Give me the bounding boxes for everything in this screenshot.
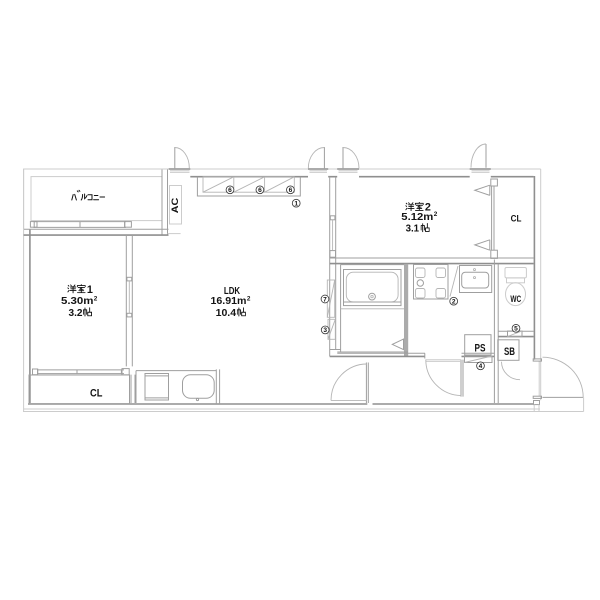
svg-text:3.2: 3.2 <box>69 308 83 319</box>
svg-text:5: 5 <box>514 326 518 333</box>
svg-text:16.91m: 16.91m <box>211 296 247 307</box>
svg-text:2: 2 <box>434 211 438 218</box>
svg-text:CL: CL <box>511 213 522 224</box>
svg-text:2: 2 <box>94 295 98 302</box>
svg-text:5.12m: 5.12m <box>401 212 433 223</box>
svg-text:1: 1 <box>87 284 93 296</box>
svg-text:6: 6 <box>228 187 232 194</box>
svg-text:AC: AC <box>169 197 180 213</box>
svg-text:6: 6 <box>258 187 262 194</box>
svg-text:4: 4 <box>479 363 483 370</box>
svg-text:CL: CL <box>90 388 103 400</box>
svg-text:SB: SB <box>504 346 515 358</box>
svg-text:2: 2 <box>452 299 456 306</box>
svg-text:PS: PS <box>475 342 486 354</box>
svg-text:10.4: 10.4 <box>216 308 237 319</box>
svg-text:2: 2 <box>247 295 251 302</box>
svg-text:6: 6 <box>289 187 293 194</box>
svg-text:3.1: 3.1 <box>406 223 420 234</box>
svg-text:1: 1 <box>294 201 298 208</box>
svg-text:5.30m: 5.30m <box>61 296 94 307</box>
svg-text:3: 3 <box>323 327 327 334</box>
svg-text:WC: WC <box>510 294 521 305</box>
svg-text:7: 7 <box>323 296 327 303</box>
